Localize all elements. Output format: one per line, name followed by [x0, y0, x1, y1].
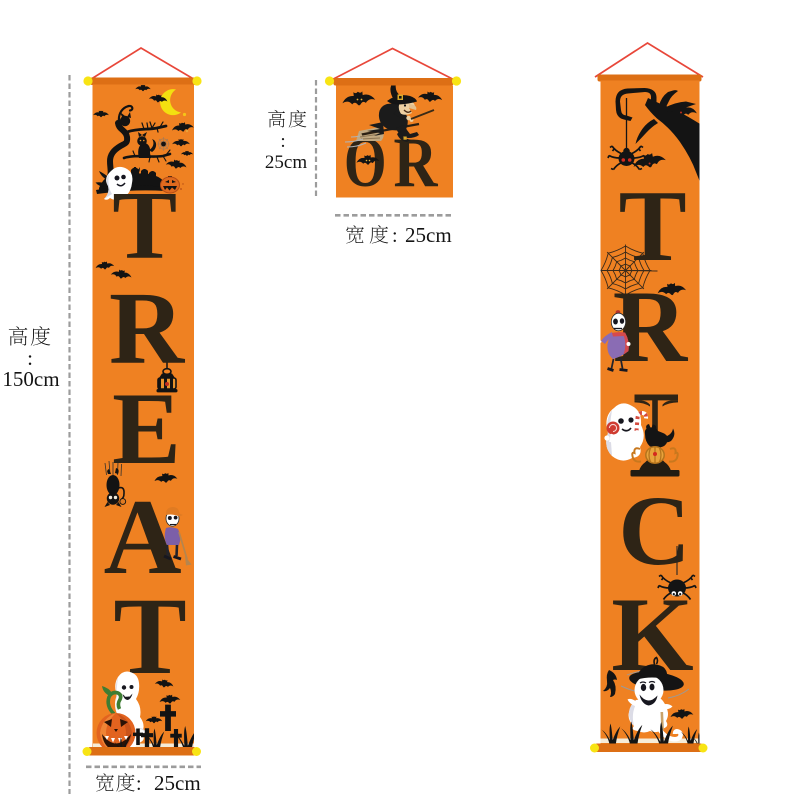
svg-text:E: E	[112, 372, 181, 486]
svg-text:150cm: 150cm	[2, 367, 59, 391]
svg-text::: :	[392, 225, 398, 247]
svg-text:25cm: 25cm	[265, 152, 307, 173]
svg-text:25cm: 25cm	[405, 223, 452, 247]
svg-text::: :	[280, 131, 285, 152]
svg-text:T: T	[112, 172, 177, 279]
svg-text::: :	[136, 773, 142, 795]
svg-text:C: C	[618, 475, 690, 586]
svg-text:25cm: 25cm	[154, 771, 201, 795]
svg-text:T: T	[619, 170, 687, 283]
svg-text:R: R	[109, 271, 186, 386]
